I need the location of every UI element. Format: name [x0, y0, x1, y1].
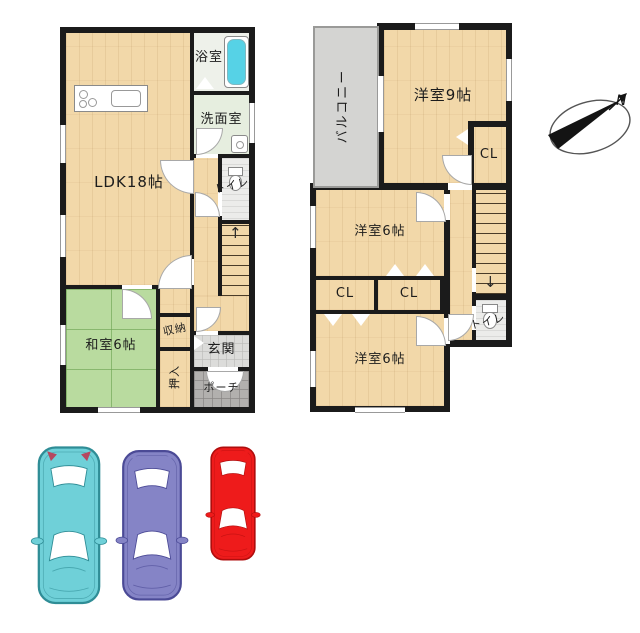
- kitchen-sink: [111, 90, 141, 107]
- floorplan-2f: バルコニー ↓ 洋室9帖 CL 洋室6帖 CL CL 洋室6帖 トイレ: [310, 23, 512, 413]
- window: [355, 407, 405, 413]
- label-bath: 浴室: [192, 51, 226, 65]
- kitchen-counter: [74, 85, 148, 112]
- bathtub: [224, 36, 249, 88]
- stove-burner: [79, 100, 87, 108]
- label-porch: ポーチ: [194, 382, 249, 394]
- wall: [156, 347, 194, 351]
- wall: [156, 313, 194, 317]
- window: [98, 407, 140, 413]
- red-car-topview: [204, 444, 262, 564]
- bathtub-water: [227, 39, 246, 85]
- label-washroom: 洗面室: [194, 113, 249, 127]
- stove-burner: [79, 90, 88, 99]
- car-mirror: [31, 538, 43, 545]
- closet-door-triangle: [386, 264, 404, 276]
- floorplan-1f: ↑ LDK18帖 浴室 洗面室 トイレ 和室6帖 収納 押入 玄関 ポーチ: [60, 27, 255, 413]
- stairs-up-arrow: ↑: [229, 226, 242, 241]
- room-ldk: [66, 33, 190, 285]
- label-genkan: 玄関: [194, 343, 249, 357]
- label-washitsu: 和室6帖: [66, 339, 156, 353]
- wash-basin: [231, 135, 248, 153]
- car-rear-window: [51, 466, 87, 487]
- label-balcony: バルコニー: [336, 59, 350, 154]
- window: [506, 59, 512, 101]
- car-mirror: [95, 538, 107, 545]
- north-compass: N: [543, 85, 638, 170]
- car-mirror: [206, 512, 215, 517]
- label-ldk: LDK18帖: [70, 174, 188, 191]
- hallway-1f: [194, 158, 218, 296]
- label-west6-middle: 洋室6帖: [316, 225, 444, 239]
- closet-door-triangle: [456, 157, 468, 173]
- label-cl3: CL: [378, 287, 440, 301]
- label-cl1: CL: [470, 148, 508, 162]
- wall: [194, 91, 249, 95]
- car-rear-window: [220, 460, 246, 475]
- window: [60, 215, 66, 257]
- label-west6-bottom: 洋室6帖: [316, 353, 444, 367]
- window: [377, 76, 384, 132]
- car-mirror: [176, 537, 188, 543]
- window: [60, 125, 66, 163]
- car-mirror: [116, 537, 128, 543]
- wall: [218, 224, 222, 296]
- label-west9: 洋室9帖: [384, 87, 502, 104]
- window: [249, 103, 255, 143]
- north-arrow: [548, 100, 620, 149]
- door-opening: [472, 268, 476, 292]
- closet-door-triangle: [416, 264, 434, 276]
- purple-car-topview: [116, 446, 188, 606]
- floor-plan-page: { "title": "2-story house floor plan wit…: [0, 0, 640, 633]
- basin-bowl: [236, 141, 244, 149]
- stove-burner: [88, 98, 97, 107]
- bath-door-triangle: [196, 77, 214, 89]
- closet-door-triangle: [456, 129, 468, 145]
- car-mirror: [252, 512, 261, 517]
- car-rear-window: [135, 468, 170, 488]
- car-windshield: [133, 531, 170, 559]
- closet-door-triangle: [324, 314, 342, 326]
- label-oshiire: 押入: [169, 362, 181, 392]
- window: [415, 23, 459, 30]
- stairs-down-arrow: ↓: [484, 275, 497, 290]
- teal-car-topview: [30, 443, 108, 609]
- closet-door-triangle: [352, 314, 370, 326]
- car-windshield: [49, 531, 88, 560]
- label-cl2: CL: [316, 287, 374, 301]
- north-label: N: [616, 93, 627, 109]
- car-windshield: [219, 508, 247, 529]
